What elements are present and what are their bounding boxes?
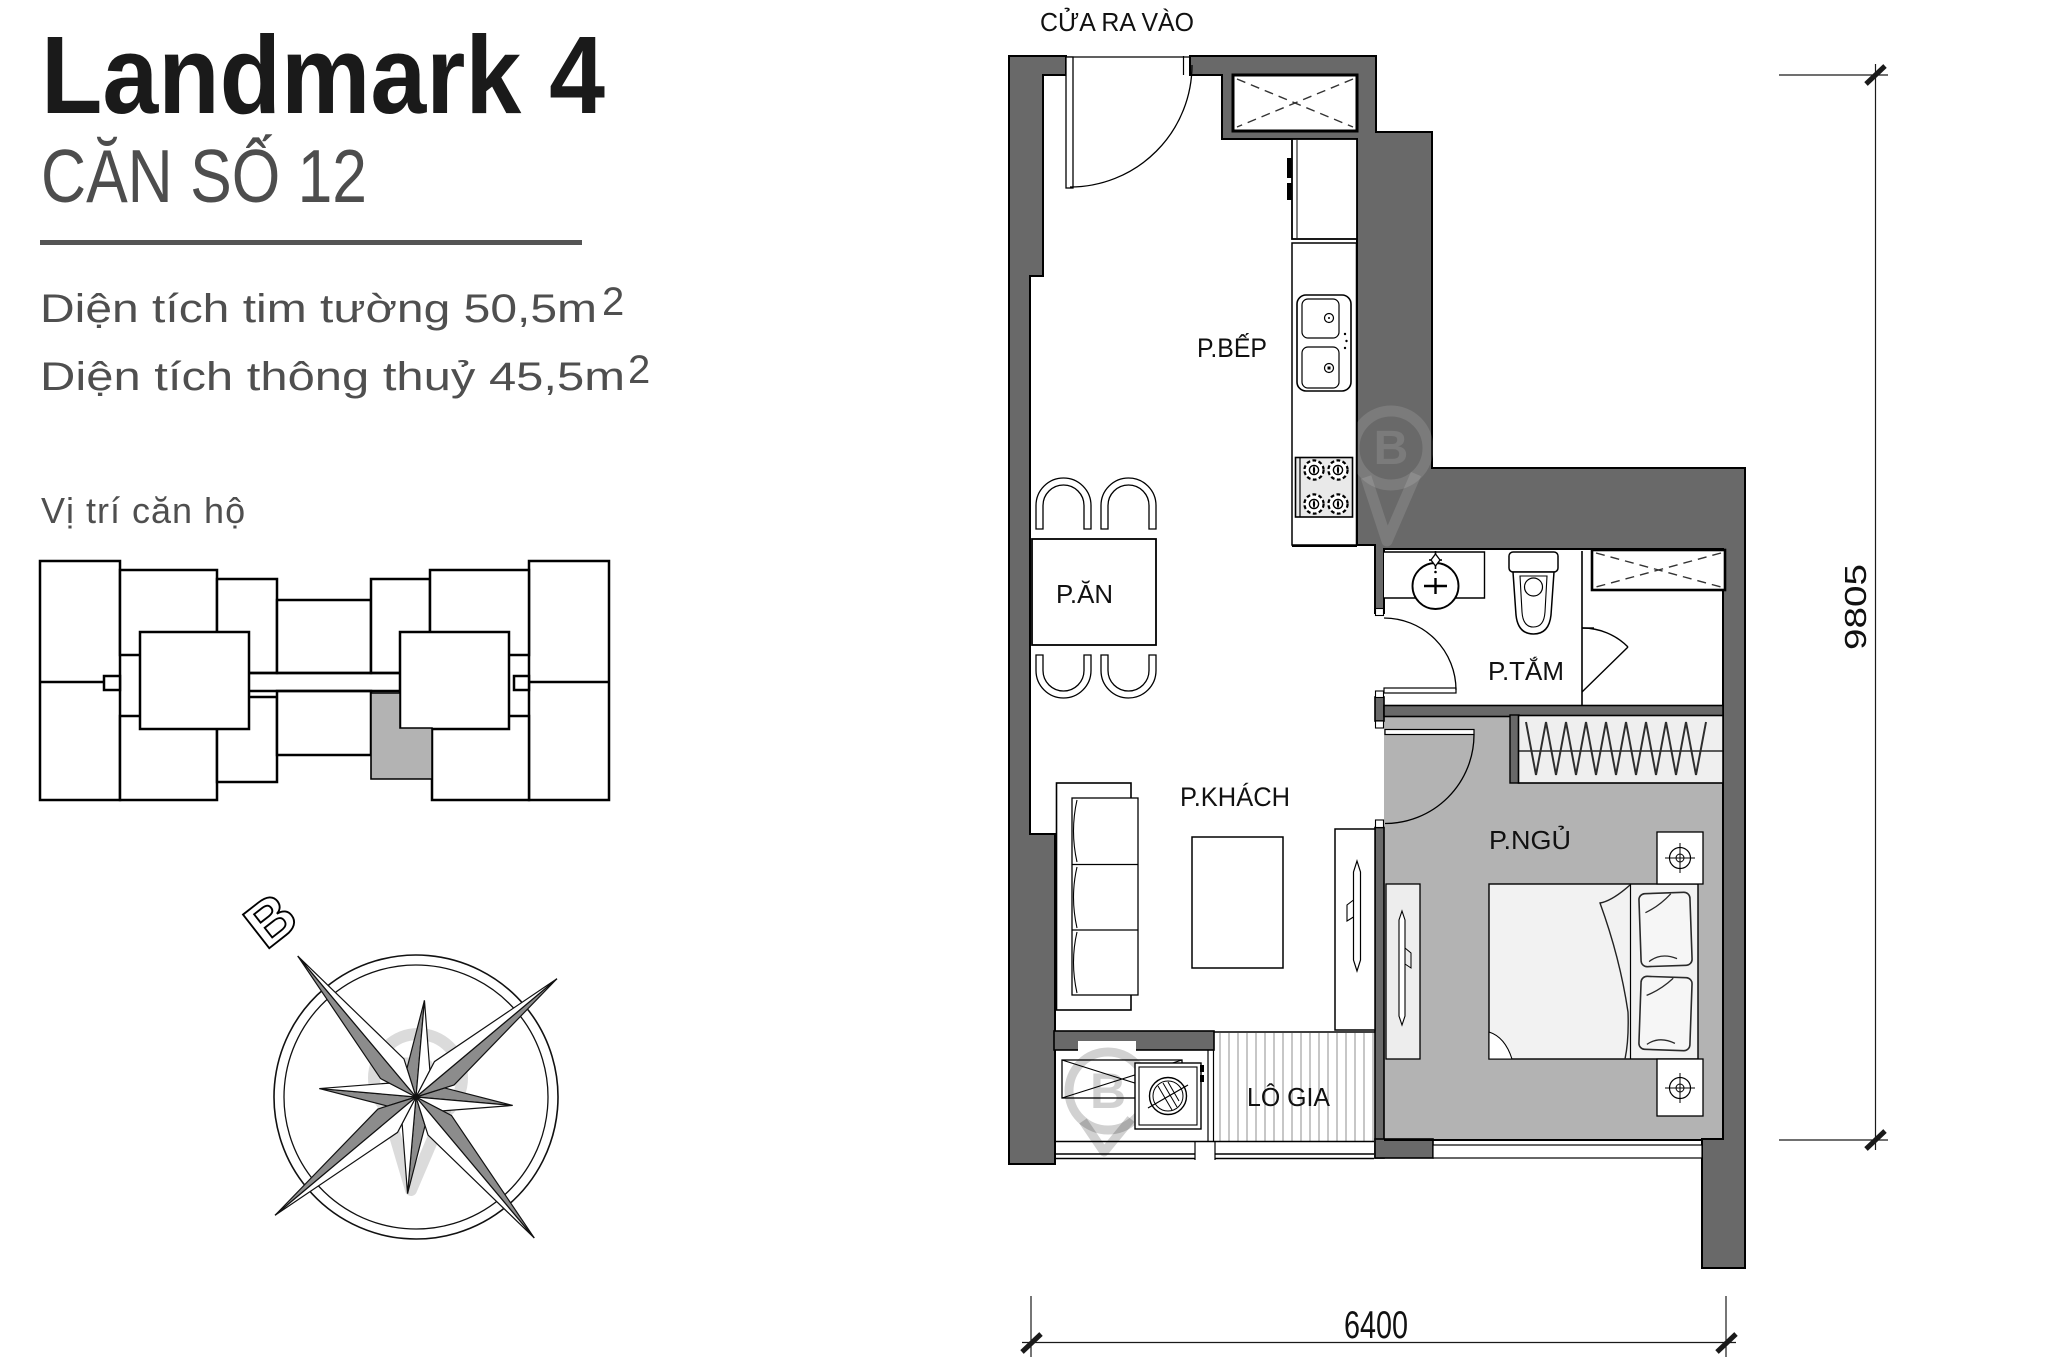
- svg-text:LÔ GIA: LÔ GIA: [1247, 1082, 1331, 1112]
- svg-text:2: 2: [628, 348, 650, 392]
- svg-text:B: B: [1374, 422, 1409, 475]
- svg-text:B: B: [1090, 1063, 1126, 1119]
- svg-text:P.TẮM: P.TẮM: [1488, 656, 1564, 686]
- svg-text:Landmark 4: Landmark 4: [41, 14, 605, 137]
- svg-text:2: 2: [602, 280, 624, 324]
- svg-text:Diện tích thông thuỷ 45,5m: Diện tích thông thuỷ 45,5m: [40, 355, 625, 399]
- svg-text:9805: 9805: [1838, 564, 1873, 650]
- svg-text:P.KHÁCH: P.KHÁCH: [1180, 782, 1290, 812]
- svg-text:Diện tích tim tường 50,5m: Diện tích tim tường 50,5m: [40, 287, 597, 331]
- svg-text:P.ĂN: P.ĂN: [1056, 579, 1113, 609]
- svg-text:P.NGỦ: P.NGỦ: [1489, 824, 1571, 855]
- svg-text:6400: 6400: [1344, 1304, 1408, 1347]
- svg-text:CĂN SỐ 12: CĂN SỐ 12: [41, 134, 367, 218]
- svg-text:CỬA RA VÀO: CỬA RA VÀO: [1040, 6, 1194, 37]
- svg-text:Vị trí căn hộ: Vị trí căn hộ: [41, 490, 246, 531]
- svg-text:P.BẾP: P.BẾP: [1197, 332, 1267, 363]
